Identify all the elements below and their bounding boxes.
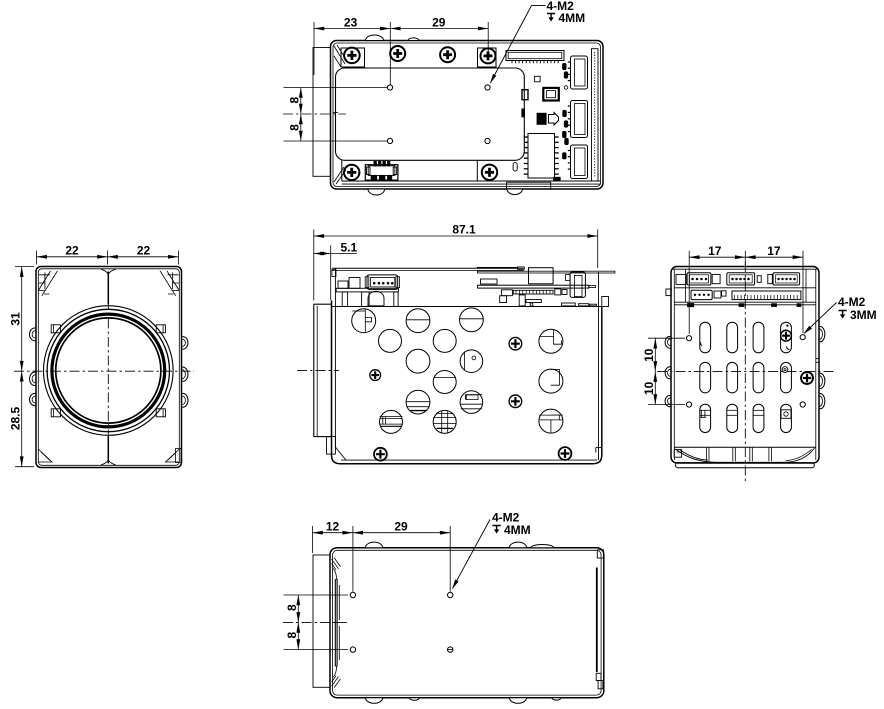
svg-text:17: 17 xyxy=(767,244,781,258)
svg-text:28.5: 28.5 xyxy=(8,406,22,430)
svg-text:10: 10 xyxy=(642,381,656,395)
svg-text:8: 8 xyxy=(288,97,302,104)
svg-text:31: 31 xyxy=(8,312,22,326)
svg-text:8: 8 xyxy=(285,604,299,611)
svg-text:8: 8 xyxy=(288,124,302,131)
svg-text:4MM: 4MM xyxy=(559,11,586,25)
svg-text:23: 23 xyxy=(344,15,358,29)
svg-text:17: 17 xyxy=(708,244,722,258)
svg-text:29: 29 xyxy=(432,15,446,29)
svg-text:4MM: 4MM xyxy=(504,523,531,537)
svg-text:3MM: 3MM xyxy=(850,308,877,322)
svg-text:87.1: 87.1 xyxy=(452,223,476,237)
svg-text:5.1: 5.1 xyxy=(341,241,358,255)
svg-text:10: 10 xyxy=(642,348,656,362)
svg-text:22: 22 xyxy=(137,243,151,257)
svg-text:4-M2: 4-M2 xyxy=(838,295,866,309)
svg-text:8: 8 xyxy=(285,631,299,638)
svg-text:29: 29 xyxy=(394,519,408,533)
svg-text:22: 22 xyxy=(65,243,79,257)
svg-text:12: 12 xyxy=(326,519,340,533)
